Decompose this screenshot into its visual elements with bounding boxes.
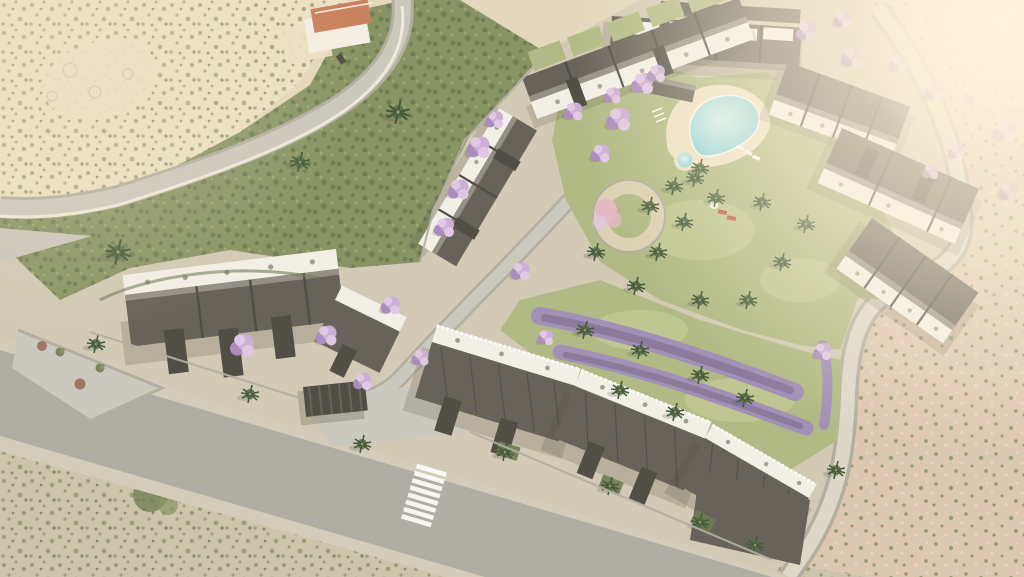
warm-filter (0, 0, 1024, 577)
aerial-render (0, 0, 1024, 577)
